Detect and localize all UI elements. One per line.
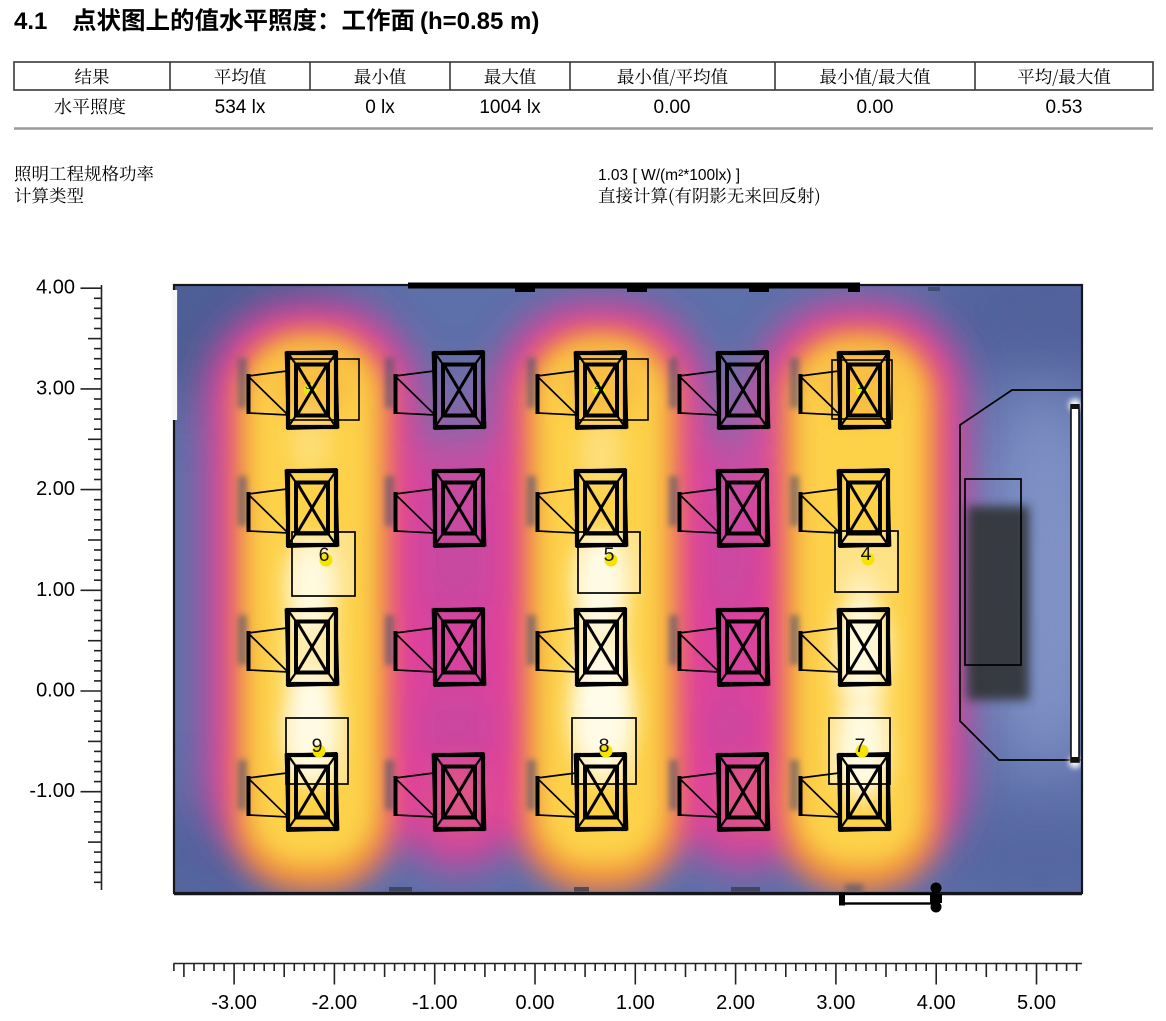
- svg-text:-1.00: -1.00: [412, 992, 458, 1014]
- svg-text:0.00: 0.00: [857, 97, 894, 118]
- svg-text:5.00: 5.00: [1017, 992, 1056, 1014]
- svg-text:9: 9: [312, 735, 323, 757]
- svg-text:0.53: 0.53: [1046, 97, 1083, 118]
- svg-text:4.00: 4.00: [917, 992, 956, 1014]
- svg-text:8: 8: [599, 735, 610, 757]
- svg-text:0.00: 0.00: [654, 97, 691, 118]
- svg-text:0 lx: 0 lx: [365, 97, 395, 118]
- svg-text:2.00: 2.00: [716, 992, 755, 1014]
- svg-text:1.03 [ W/(m²*100lx) ]: 1.03 [ W/(m²*100lx) ]: [598, 167, 740, 184]
- svg-text:3.00: 3.00: [36, 377, 75, 399]
- svg-text:0.00: 0.00: [516, 992, 555, 1014]
- svg-text:5: 5: [604, 544, 615, 566]
- svg-text:0.00: 0.00: [36, 680, 75, 702]
- svg-text:2.00: 2.00: [36, 478, 75, 500]
- svg-text:3.00: 3.00: [816, 992, 855, 1014]
- svg-text:1.00: 1.00: [616, 992, 655, 1014]
- svg-text:1004 lx: 1004 lx: [479, 97, 541, 118]
- svg-text:4: 4: [861, 543, 872, 565]
- svg-text:534 lx: 534 lx: [215, 97, 266, 118]
- svg-text:6: 6: [319, 544, 330, 566]
- svg-text:4.00: 4.00: [36, 277, 75, 299]
- svg-text:(h=0.85 m): (h=0.85 m): [420, 8, 539, 35]
- svg-text:-1.00: -1.00: [29, 780, 75, 802]
- svg-text:7: 7: [855, 735, 866, 757]
- svg-text:1.00: 1.00: [36, 579, 75, 601]
- svg-text:-2.00: -2.00: [312, 992, 358, 1014]
- svg-text:4.1: 4.1: [14, 8, 47, 35]
- svg-text:-3.00: -3.00: [211, 992, 257, 1014]
